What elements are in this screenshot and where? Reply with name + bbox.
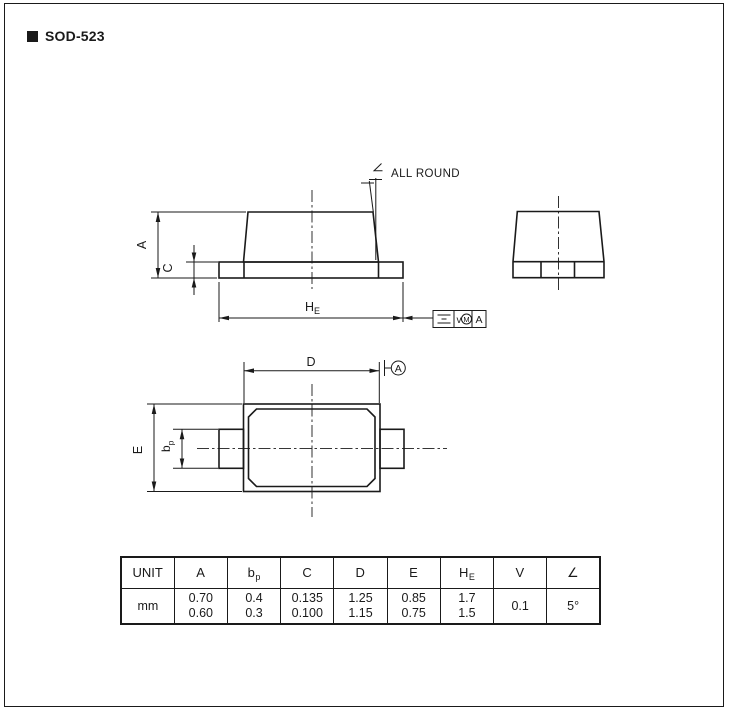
value-cell-he: 1.71.5 xyxy=(440,589,493,625)
all-round-label: ALL ROUND xyxy=(391,168,460,180)
dim-bp-label: bp xyxy=(159,440,176,452)
unit-cell: mm xyxy=(121,589,174,625)
angle-icon xyxy=(374,164,383,171)
col-header-unit: UNIT xyxy=(121,557,174,589)
dim-C: C xyxy=(161,245,218,295)
value-cell-c: 0.1350.100 xyxy=(281,589,334,625)
dimension-table: UNIT A bp C D E HE V ∠ mm 0.700.60 0.40.… xyxy=(120,556,601,625)
value-cell-d: 1.251.15 xyxy=(334,589,387,625)
fcf-tolerance-label: v xyxy=(457,315,462,326)
dim-bp-sub: p xyxy=(166,440,176,445)
value-cell-v: 0.1 xyxy=(494,589,547,625)
side-view-body xyxy=(244,212,379,262)
page: { "page": { "title": "SOD-523" }, "drawi… xyxy=(0,0,733,717)
dim-D-label: D xyxy=(306,355,315,369)
fcf-leader xyxy=(403,316,433,321)
col-header-he: HE xyxy=(440,557,493,589)
dim-C-label: C xyxy=(161,263,175,272)
dim-A: A xyxy=(135,212,246,278)
end-view xyxy=(513,196,604,292)
dim-bp: bp xyxy=(159,429,218,468)
value-cell-a: 0.700.60 xyxy=(174,589,227,625)
col-header-d: D xyxy=(334,557,387,589)
dim-E: E xyxy=(131,404,242,492)
dim-A-label: A xyxy=(135,240,149,249)
symmetry-symbol-icon xyxy=(438,315,451,323)
dim-E-label: E xyxy=(131,446,145,454)
dim-HE-label: HE xyxy=(305,300,320,316)
table-header-row: UNIT A bp C D E HE V ∠ xyxy=(121,557,600,589)
fcf-datum-label: A xyxy=(475,314,482,326)
value-cell-e: 0.850.75 xyxy=(387,589,440,625)
col-header-bp: bp xyxy=(227,557,280,589)
feature-control-frame: v M A xyxy=(433,311,486,328)
all-round-annotation: ALL ROUND xyxy=(361,164,460,261)
dim-HE: HE xyxy=(219,282,403,322)
value-cell-bp: 0.40.3 xyxy=(227,589,280,625)
fcf-modifier-label: M xyxy=(463,315,469,324)
datum-label: A xyxy=(395,363,402,375)
col-header-v: V xyxy=(494,557,547,589)
col-header-angle: ∠ xyxy=(547,557,600,589)
value-cell-angle: 5° xyxy=(547,589,600,625)
col-header-c: C xyxy=(281,557,334,589)
dim-HE-sub: E xyxy=(314,306,320,316)
table-row: mm 0.700.60 0.40.3 0.1350.100 1.251.15 0… xyxy=(121,589,600,625)
col-header-a: A xyxy=(174,557,227,589)
datum-flag: A xyxy=(385,360,406,376)
side-view-base-plate xyxy=(219,262,403,278)
col-header-e: E xyxy=(387,557,440,589)
dim-HE-main: H xyxy=(305,300,314,314)
